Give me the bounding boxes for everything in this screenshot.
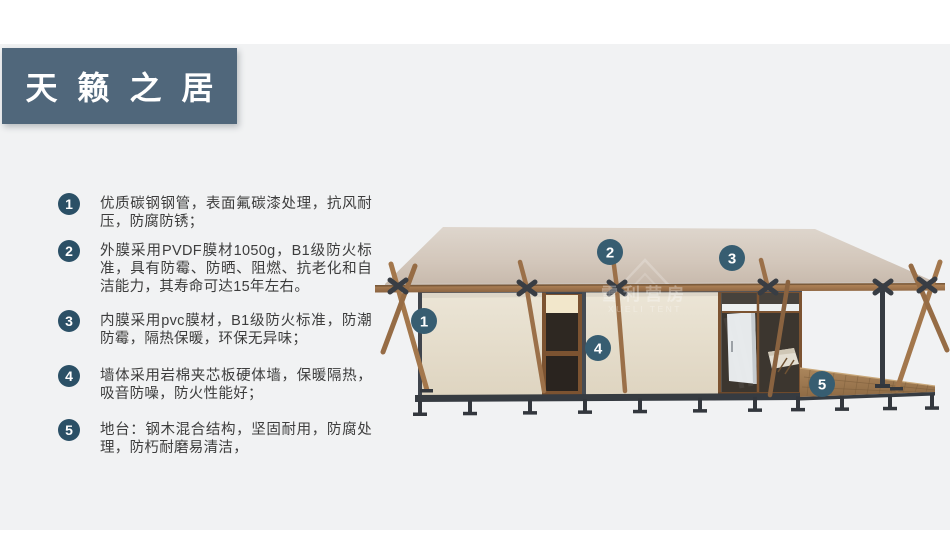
feature-text: 内膜采用pvc膜材，B1级防火标准，防潮防霉，隔热保暖，环保无异味； [100,312,372,348]
feature-text: 墙体采用岩棉夹芯板硬体墙，保暖隔热，吸音防噪，防火性能好； [100,367,372,403]
watermark-cn: 雪利营房 [601,284,689,304]
tent-illustration: 雪利营房 XUELI TENT 1 2 3 4 [370,200,950,440]
porch-post [880,288,885,386]
diagram-marker-2: 2 [597,239,623,265]
feature-number-badge: 1 [58,193,80,215]
slide-page: 天籁之居 1 优质碳钢钢管，表面氟碳漆处理，抗风耐压，防腐防锈； 2 外膜采用P… [0,0,950,534]
diagram-marker-3: 3 [719,245,745,271]
feature-text: 优质碳钢钢管，表面氟碳漆处理，抗风耐压，防腐防锈； [100,195,372,231]
diagram-marker-1: 1 [411,308,437,334]
diagram-marker-4: 4 [585,335,611,361]
svg-text:5: 5 [818,377,826,394]
svg-text:4: 4 [594,341,603,358]
feature-number-badge: 5 [58,419,80,441]
feature-text: 地台：钢木混合结构，坚固耐用，防腐处理，防朽耐磨易清洁， [100,421,372,457]
glass-wall-section [718,290,802,396]
feature-number-badge: 2 [58,240,80,262]
feature-number-badge: 4 [58,365,80,387]
diagram-marker-5: 5 [809,371,835,397]
feature-text: 外膜采用PVDF膜材1050g，B1级防火标准，具有防霉、防晒、阻燃、抗老化和自… [100,242,372,296]
watermark: 雪利营房 XUELI TENT [601,284,689,314]
svg-text:2: 2 [606,245,614,262]
watermark-en: XUELI TENT [608,304,682,314]
feature-list: 1 优质碳钢钢管，表面氟碳漆处理，抗风耐压，防腐防锈； 2 外膜采用PVDF膜材… [58,0,388,534]
entry-door [542,290,586,396]
svg-text:1: 1 [420,314,428,331]
svg-text:3: 3 [728,251,736,268]
feature-number-badge: 3 [58,310,80,332]
